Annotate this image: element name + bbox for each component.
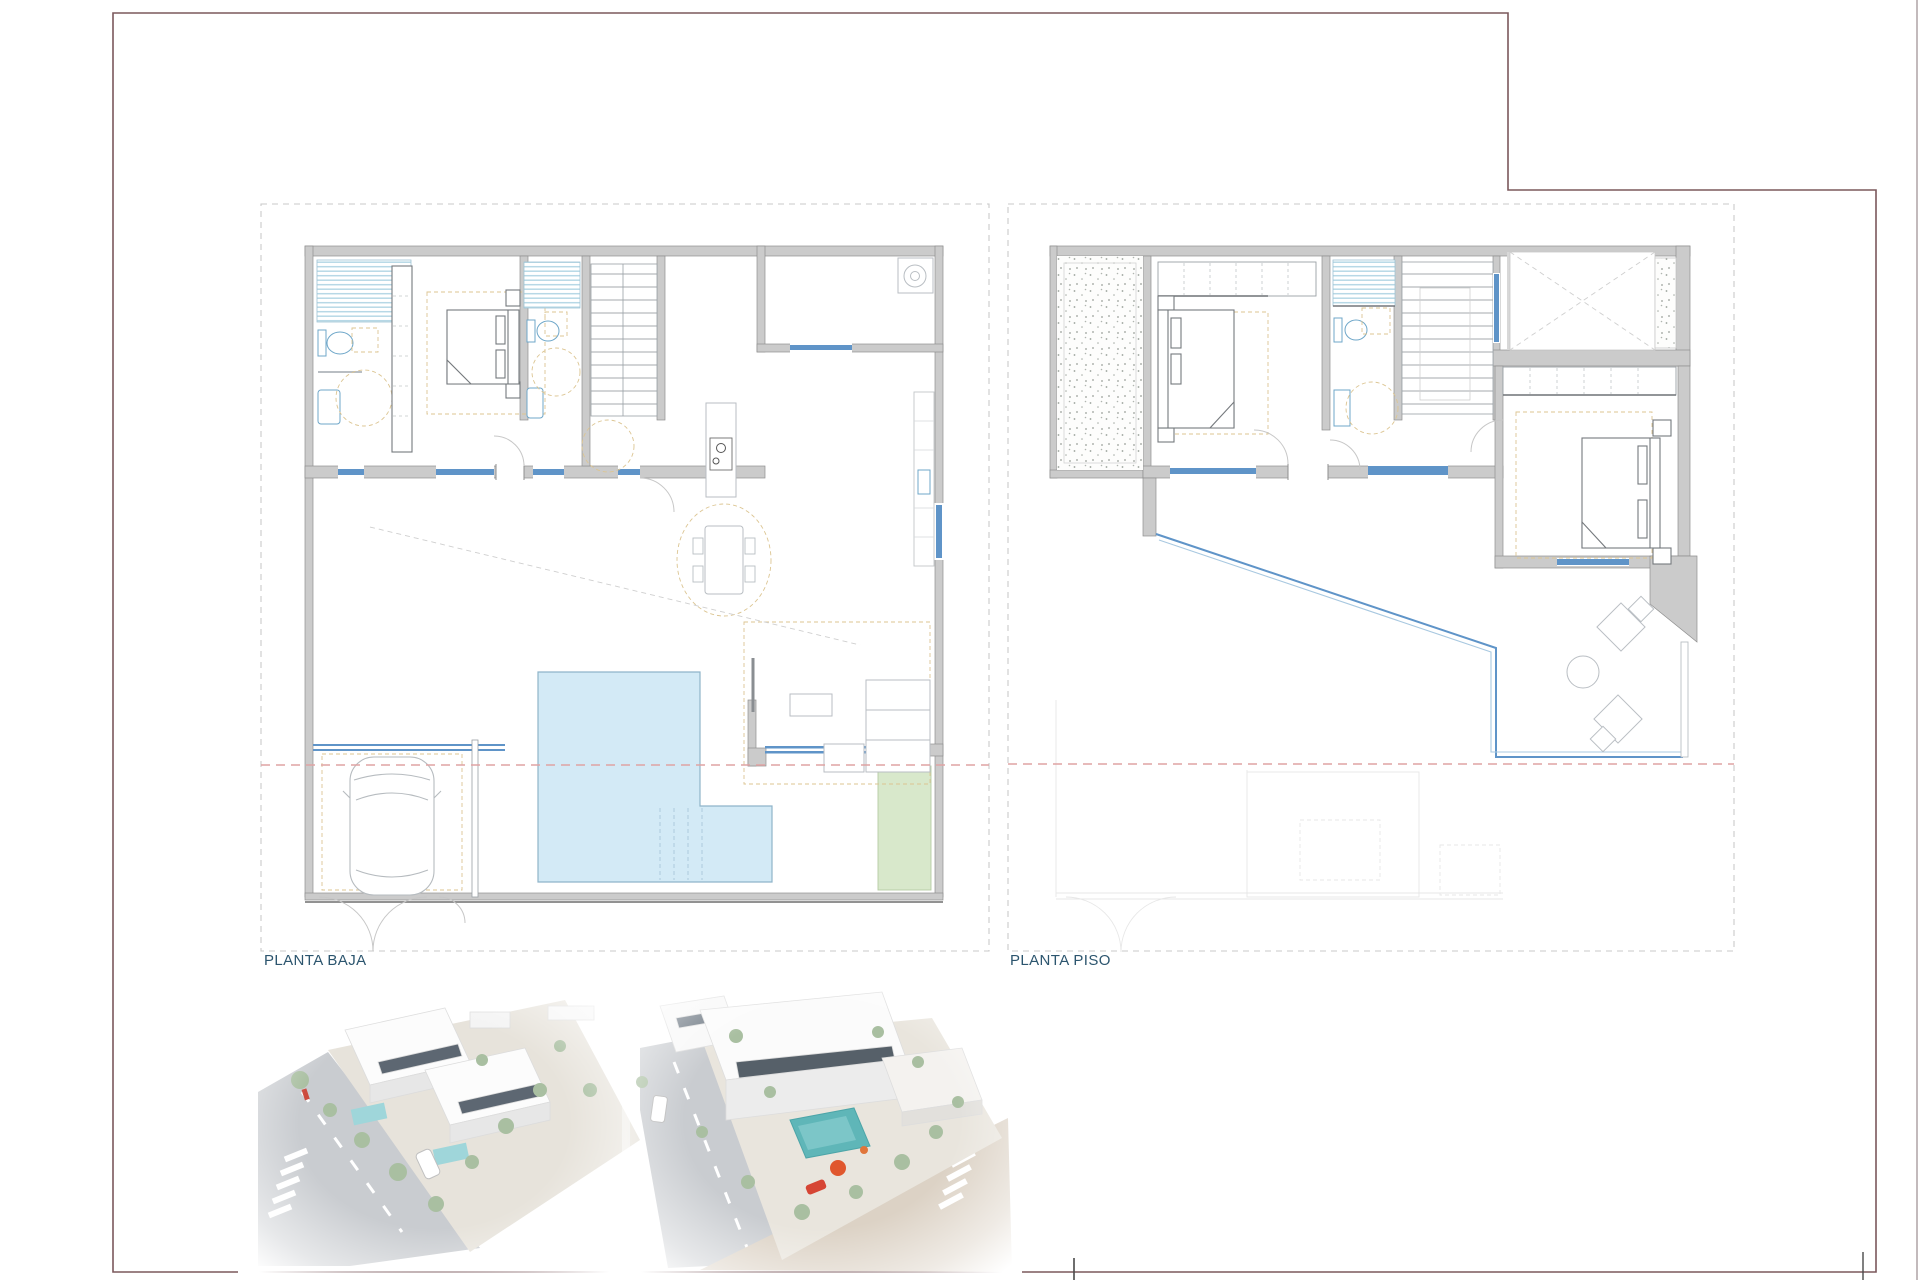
door-swing	[494, 436, 524, 466]
ground-floor-label: PLANTA BAJA	[264, 952, 367, 969]
plan-planta-piso	[1008, 204, 1734, 952]
ground-floor-echo	[1056, 700, 1503, 952]
bedroom-3	[1503, 367, 1676, 564]
door-swing	[1330, 440, 1360, 470]
sofa	[866, 680, 930, 772]
stairs	[591, 264, 657, 416]
sink	[318, 390, 340, 424]
bathroom	[1330, 260, 1398, 470]
kitchen-sink	[918, 470, 930, 494]
sink	[527, 388, 543, 418]
dining-table	[705, 526, 743, 594]
coffee-table	[790, 694, 832, 716]
car	[343, 757, 441, 895]
door-swing	[1254, 430, 1288, 464]
terrace-table	[1567, 656, 1599, 688]
door-swing	[640, 478, 674, 512]
gravel-terrace	[1057, 256, 1143, 470]
parapet	[1681, 642, 1688, 757]
void-skylight	[1507, 252, 1676, 350]
garage-door-swing	[319, 897, 373, 951]
garage	[319, 740, 478, 951]
garden-strip	[878, 766, 931, 890]
patio-roof-edge	[370, 527, 860, 645]
sink	[1334, 390, 1350, 426]
kitchen	[677, 392, 934, 616]
render-fade	[622, 962, 1022, 1278]
shower	[1333, 260, 1395, 306]
bed	[1158, 296, 1234, 442]
shower	[524, 262, 580, 308]
door-swing	[439, 897, 465, 923]
bed	[1582, 420, 1671, 564]
wardrobe	[392, 266, 412, 452]
drawing-canvas	[0, 0, 1920, 1280]
aerial-render-overview	[238, 972, 640, 1276]
drawing-sheet: PLANTA BAJA PLANTA PISO	[0, 0, 1920, 1280]
upper-floor-label: PLANTA PISO	[1010, 952, 1111, 969]
bathroom-2	[524, 262, 580, 418]
toilet	[537, 321, 559, 341]
toilet	[1345, 320, 1367, 340]
pool	[538, 672, 772, 882]
bed	[447, 290, 520, 398]
aerial-render-closeup	[622, 962, 1022, 1278]
utility-room	[898, 258, 933, 293]
garage-door-swing	[373, 897, 427, 951]
stairs	[1402, 262, 1493, 414]
wardrobe	[1503, 367, 1676, 395]
living-room	[744, 622, 930, 784]
plan-planta-baja	[261, 204, 989, 951]
wardrobe	[1158, 262, 1316, 296]
render-fade	[238, 972, 630, 1276]
bedroom-2	[1158, 262, 1316, 442]
toilet	[327, 332, 353, 354]
